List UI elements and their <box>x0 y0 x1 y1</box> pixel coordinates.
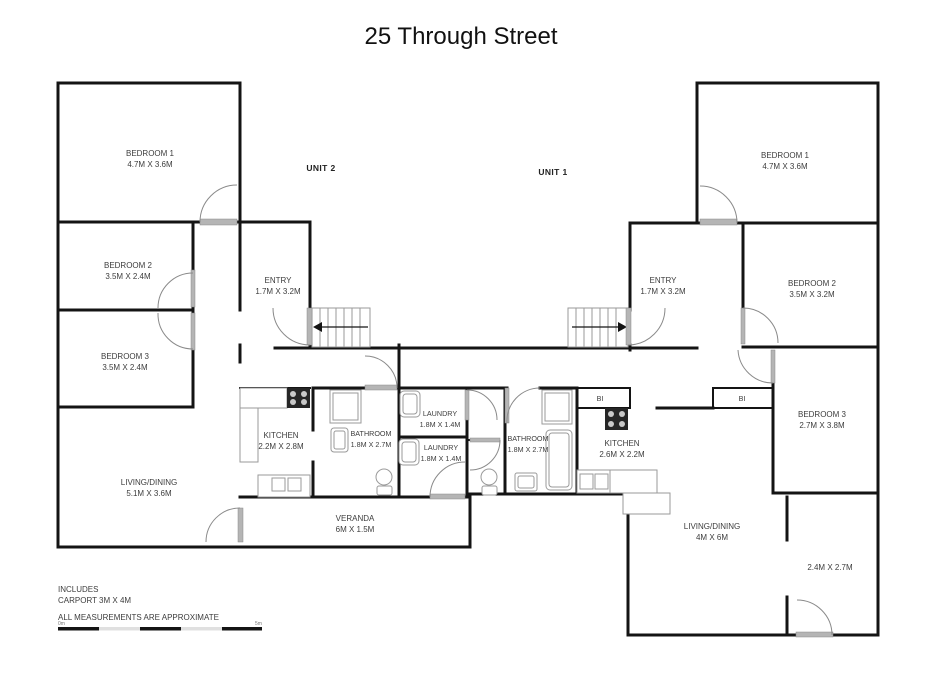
svg-text:LIVING/DINING: LIVING/DINING <box>684 522 740 531</box>
door-leaf <box>191 313 195 350</box>
room-label-u2-laundry: LAUNDRY 1.8M X 1.4M <box>421 443 462 463</box>
room-label-u1-laundry: LAUNDRY 1.8M X 1.4M <box>420 409 461 429</box>
door-leaf <box>626 308 631 345</box>
svg-text:LAUNDRY: LAUNDRY <box>424 443 458 452</box>
unit1-label: UNIT 1 <box>538 167 567 177</box>
scale-start-label: 0m <box>58 621 65 627</box>
shower-icon <box>542 390 572 424</box>
svg-text:2.7M X 3.8M: 2.7M X 3.8M <box>799 421 845 430</box>
note-includes: INCLUDES <box>58 585 98 594</box>
room-label-u1-room24: 2.4M X 2.7M <box>807 563 853 572</box>
room-label-u2-bedroom2: BEDROOM 2 3.5M X 2.4M <box>104 261 153 281</box>
svg-text:VERANDA: VERANDA <box>336 514 375 523</box>
toilet-icon <box>481 469 497 485</box>
room-label-u2-kitchen: KITCHEN 2.2M X 2.8M <box>258 431 304 451</box>
svg-text:LAUNDRY: LAUNDRY <box>423 409 457 418</box>
room-label-u1-entry: ENTRY 1.7M X 3.2M <box>640 276 686 296</box>
svg-text:3.5M X 3.2M: 3.5M X 3.2M <box>789 290 835 299</box>
room-label-u2-bathroom: BATHROOM 1.8M X 2.7M <box>351 429 392 449</box>
counter <box>240 408 258 462</box>
svg-text:BEDROOM 2: BEDROOM 2 <box>788 279 837 288</box>
room-label-u1-bathroom: BATHROOM 1.8M X 2.7M <box>508 434 549 454</box>
room-label-u1-bedroom3: BEDROOM 3 2.7M X 3.8M <box>798 410 847 430</box>
svg-text:BEDROOM 1: BEDROOM 1 <box>126 149 175 158</box>
room-label-u2-veranda: VERANDA 6M X 1.5M <box>336 514 375 534</box>
svg-text:4.7M X 3.6M: 4.7M X 3.6M <box>762 162 808 171</box>
walls <box>58 83 878 635</box>
svg-text:2.2M X 2.8M: 2.2M X 2.8M <box>258 442 304 451</box>
door-leaf <box>430 494 465 499</box>
door-leaf <box>365 385 397 390</box>
svg-text:1.8M X 2.7M: 1.8M X 2.7M <box>351 440 392 449</box>
svg-text:2.6M X 2.2M: 2.6M X 2.2M <box>599 450 645 459</box>
counter <box>610 470 657 493</box>
bi-label-hall: BI <box>739 394 746 403</box>
svg-text:1.7M X 3.2M: 1.7M X 3.2M <box>255 287 301 296</box>
room-label-u2-entry: ENTRY 1.7M X 3.2M <box>255 276 301 296</box>
room-label-u2-bedroom1: BEDROOM 1 4.7M X 3.6M <box>126 149 175 169</box>
door-leaf <box>470 438 500 442</box>
note-disclaimer: ALL MEASUREMENTS ARE APPROXIMATE <box>58 613 219 622</box>
door-leaf <box>307 308 312 345</box>
door-leaf <box>191 270 195 307</box>
door-leaf <box>741 308 745 344</box>
svg-text:3.5M X 2.4M: 3.5M X 2.4M <box>105 272 151 281</box>
room-label-u1-living: LIVING/DINING 4M X 6M <box>684 522 740 542</box>
door-leaf <box>700 219 737 225</box>
bi-label-kitchen: BI <box>597 394 604 403</box>
door-leaf <box>465 390 469 420</box>
svg-text:4M X 6M: 4M X 6M <box>696 533 728 542</box>
toilet-icon <box>376 469 392 485</box>
shower-icon <box>330 390 361 423</box>
svg-text:BATHROOM: BATHROOM <box>508 434 549 443</box>
scale-end-label: 5m <box>255 621 262 627</box>
door-leaf <box>238 508 243 542</box>
room-label-u1-bedroom2: BEDROOM 2 3.5M X 3.2M <box>788 279 837 299</box>
svg-text:KITCHEN: KITCHEN <box>263 431 298 440</box>
svg-text:ENTRY: ENTRY <box>265 276 293 285</box>
room-label-u1-kitchen: KITCHEN 2.6M X 2.2M <box>599 439 645 459</box>
stove-icon <box>605 408 628 430</box>
svg-text:6M X 1.5M: 6M X 1.5M <box>336 525 375 534</box>
door-leaf <box>796 632 833 637</box>
svg-text:LIVING/DINING: LIVING/DINING <box>121 478 177 487</box>
stove-icon <box>287 388 310 408</box>
svg-text:1.8M X 1.4M: 1.8M X 1.4M <box>420 420 461 429</box>
svg-text:KITCHEN: KITCHEN <box>604 439 639 448</box>
svg-text:ENTRY: ENTRY <box>650 276 678 285</box>
svg-text:5.1M X 3.6M: 5.1M X 3.6M <box>126 489 172 498</box>
svg-text:BEDROOM 1: BEDROOM 1 <box>761 151 810 160</box>
labels: 25 Through Street UNIT 2 UNIT 1 BEDROOM … <box>58 23 853 622</box>
svg-text:BEDROOM 2: BEDROOM 2 <box>104 261 153 270</box>
bathtub-icon <box>546 430 572 490</box>
scale-bar: 0m 5m <box>58 621 262 631</box>
svg-text:1.8M X 1.4M: 1.8M X 1.4M <box>421 454 462 463</box>
counter <box>240 388 287 408</box>
room-label-u2-bedroom3: BEDROOM 3 3.5M X 2.4M <box>101 352 150 372</box>
floorplan-page: 25 Through Street UNIT 2 UNIT 1 BEDROOM … <box>0 0 936 675</box>
room-label-u1-bedroom1: BEDROOM 1 4.7M X 3.6M <box>761 151 810 171</box>
counter <box>623 493 670 514</box>
svg-text:3.5M X 2.4M: 3.5M X 2.4M <box>102 363 148 372</box>
page-title: 25 Through Street <box>364 23 557 50</box>
svg-text:BEDROOM 3: BEDROOM 3 <box>798 410 847 419</box>
svg-text:1.7M X 3.2M: 1.7M X 3.2M <box>640 287 686 296</box>
svg-text:BEDROOM 3: BEDROOM 3 <box>101 352 150 361</box>
stairs-unit1 <box>568 308 628 347</box>
built-in-kitchen-box <box>577 388 630 408</box>
floorplan-canvas: 25 Through Street UNIT 2 UNIT 1 BEDROOM … <box>0 0 936 675</box>
unit2-label: UNIT 2 <box>306 163 335 173</box>
room-label-u2-living: LIVING/DINING 5.1M X 3.6M <box>121 478 177 498</box>
stairs-unit2 <box>312 308 370 347</box>
svg-text:4.7M X 3.6M: 4.7M X 3.6M <box>127 160 173 169</box>
doors <box>158 185 833 637</box>
svg-text:1.8M X 2.7M: 1.8M X 2.7M <box>508 445 549 454</box>
door-leaf <box>771 350 775 383</box>
svg-text:BATHROOM: BATHROOM <box>351 429 392 438</box>
note-carport: CARPORT 3M X 4M <box>58 596 131 605</box>
door-leaf <box>200 219 237 225</box>
